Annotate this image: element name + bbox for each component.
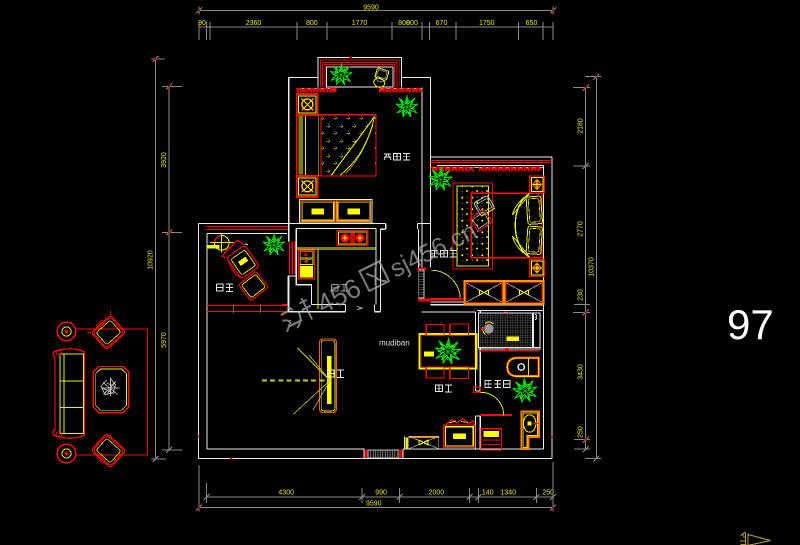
svg-text:2180: 2180 <box>578 118 585 134</box>
svg-text:1750: 1750 <box>479 20 495 27</box>
svg-text:9590: 9590 <box>363 5 379 12</box>
svg-text:3430: 3430 <box>578 364 585 380</box>
svg-text:1770: 1770 <box>352 20 368 27</box>
svg-text:2770: 2770 <box>578 221 585 237</box>
svg-text:800: 800 <box>306 20 318 27</box>
svg-text:10920: 10920 <box>148 250 155 270</box>
svg-text:230: 230 <box>578 289 585 301</box>
svg-text:1340: 1340 <box>500 490 516 497</box>
svg-text:250: 250 <box>542 490 554 497</box>
svg-text:mudiban: mudiban <box>379 339 410 348</box>
svg-text:456: 456 <box>312 273 366 320</box>
svg-text:90: 90 <box>198 20 206 27</box>
svg-text:5970: 5970 <box>161 332 168 348</box>
svg-text:2000: 2000 <box>429 490 445 497</box>
svg-text:97: 97 <box>727 301 774 348</box>
svg-text:140: 140 <box>482 490 494 497</box>
svg-text:3920: 3920 <box>161 152 168 168</box>
svg-text:4300: 4300 <box>278 490 294 497</box>
svg-text:650: 650 <box>526 20 538 27</box>
svg-text:670: 670 <box>436 20 448 27</box>
svg-text:800: 800 <box>406 20 418 27</box>
svg-text:2360: 2360 <box>246 20 262 27</box>
svg-text:9590: 9590 <box>366 501 382 508</box>
svg-text:990: 990 <box>375 490 387 497</box>
svg-text:250: 250 <box>578 426 585 438</box>
svg-text:10370: 10370 <box>589 257 596 277</box>
